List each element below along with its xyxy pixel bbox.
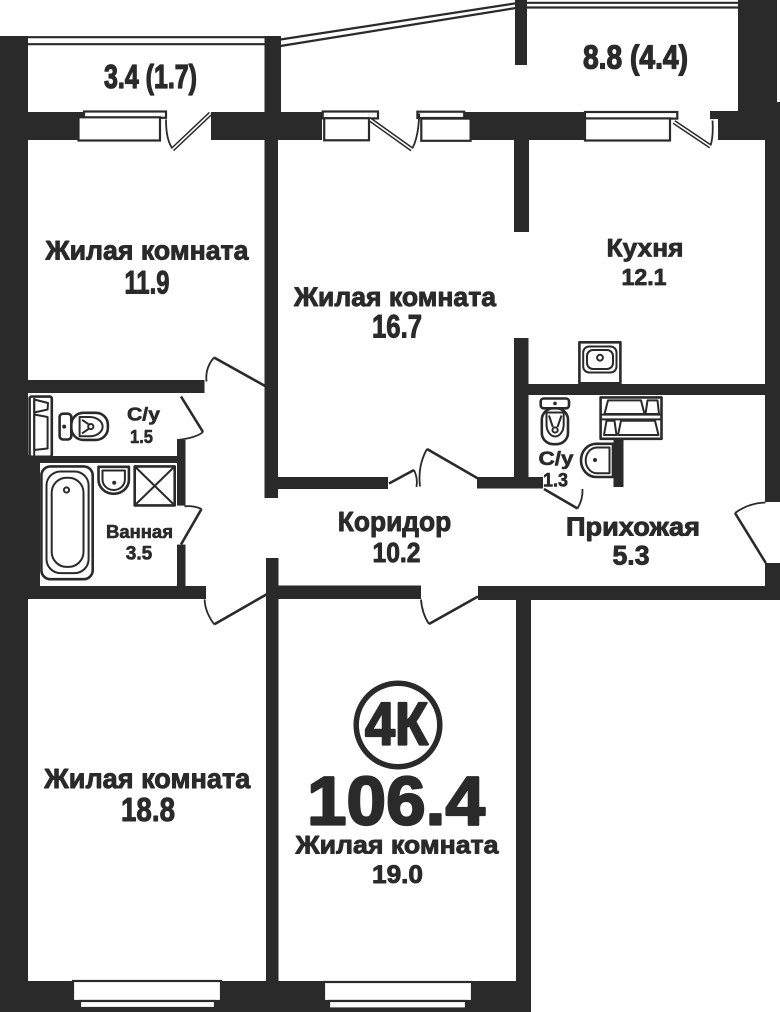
svg-text:5.3: 5.3 — [613, 541, 650, 571]
svg-text:1.3: 1.3 — [543, 470, 568, 492]
svg-text:Жилая комната: Жилая комната — [293, 282, 497, 312]
svg-text:Коридор: Коридор — [338, 506, 452, 537]
svg-text:11.9: 11.9 — [125, 265, 170, 301]
svg-text:1.5: 1.5 — [130, 427, 153, 447]
svg-text:Жилая комната: Жилая комната — [294, 832, 499, 860]
svg-text:16.7: 16.7 — [372, 309, 422, 345]
svg-text:106.4: 106.4 — [307, 763, 485, 840]
svg-text:4К: 4К — [365, 691, 428, 758]
svg-text:8.8 (4.4): 8.8 (4.4) — [583, 39, 688, 76]
svg-text:12.1: 12.1 — [622, 264, 667, 290]
svg-text:19.0: 19.0 — [372, 861, 423, 889]
svg-text:С/у: С/у — [127, 405, 160, 425]
svg-text:Жилая комната: Жилая комната — [45, 236, 250, 266]
svg-text:3.4 (1.7): 3.4 (1.7) — [104, 58, 197, 95]
svg-text:10.2: 10.2 — [373, 537, 421, 568]
svg-text:Жилая комната: Жилая комната — [43, 763, 250, 794]
svg-text:С/у: С/у — [539, 448, 574, 470]
svg-text:Ванная: Ванная — [106, 522, 173, 542]
svg-text:18.8: 18.8 — [121, 791, 175, 828]
svg-text:3.5: 3.5 — [126, 544, 153, 565]
svg-text:Кухня: Кухня — [607, 234, 684, 262]
svg-text:Прихожая: Прихожая — [566, 512, 700, 542]
